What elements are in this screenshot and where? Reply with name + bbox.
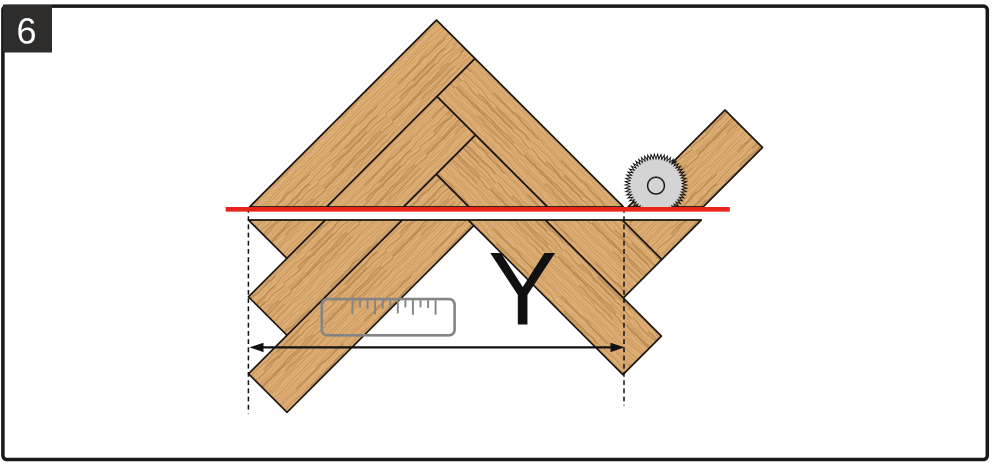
svg-text:Y: Y [488,232,557,348]
svg-text:6: 6 [17,10,37,51]
